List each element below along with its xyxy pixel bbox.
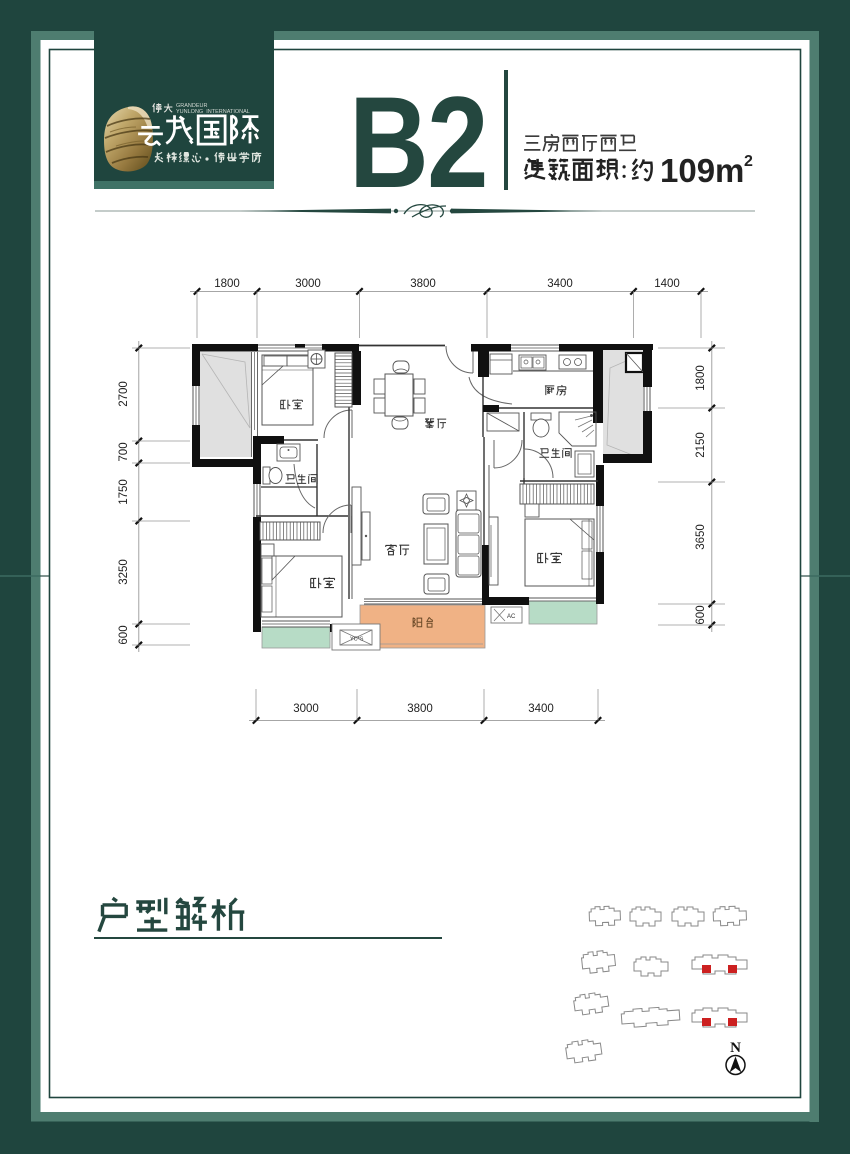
svg-text:3400: 3400 xyxy=(528,703,554,715)
svg-text:3650: 3650 xyxy=(695,524,707,550)
svg-text:3800: 3800 xyxy=(407,703,433,715)
svg-text:3800: 3800 xyxy=(410,278,436,290)
svg-text:600: 600 xyxy=(695,605,707,624)
svg-text:2150: 2150 xyxy=(695,432,707,458)
svg-text:B2: B2 xyxy=(349,70,487,215)
svg-text:600: 600 xyxy=(118,625,130,644)
svg-text:1800: 1800 xyxy=(214,278,240,290)
svg-text:AC: AC xyxy=(507,614,516,620)
svg-text:2700: 2700 xyxy=(118,381,130,407)
svg-text:N: N xyxy=(730,1040,741,1056)
svg-text:3000: 3000 xyxy=(293,703,319,715)
svg-text:YUNLONG INTERNATIONAL: YUNLONG INTERNATIONAL xyxy=(176,109,250,115)
svg-text:1750: 1750 xyxy=(118,479,130,505)
svg-text:1800: 1800 xyxy=(695,365,707,391)
svg-text:1400: 1400 xyxy=(654,278,680,290)
svg-text:3000: 3000 xyxy=(295,278,321,290)
svg-text:3400: 3400 xyxy=(547,278,573,290)
svg-text:3250: 3250 xyxy=(118,559,130,585)
svg-text:YC*S: YC*S xyxy=(350,637,364,643)
svg-text:700: 700 xyxy=(118,442,130,461)
svg-text:2: 2 xyxy=(744,153,753,170)
svg-text:109m: 109m xyxy=(660,152,744,189)
